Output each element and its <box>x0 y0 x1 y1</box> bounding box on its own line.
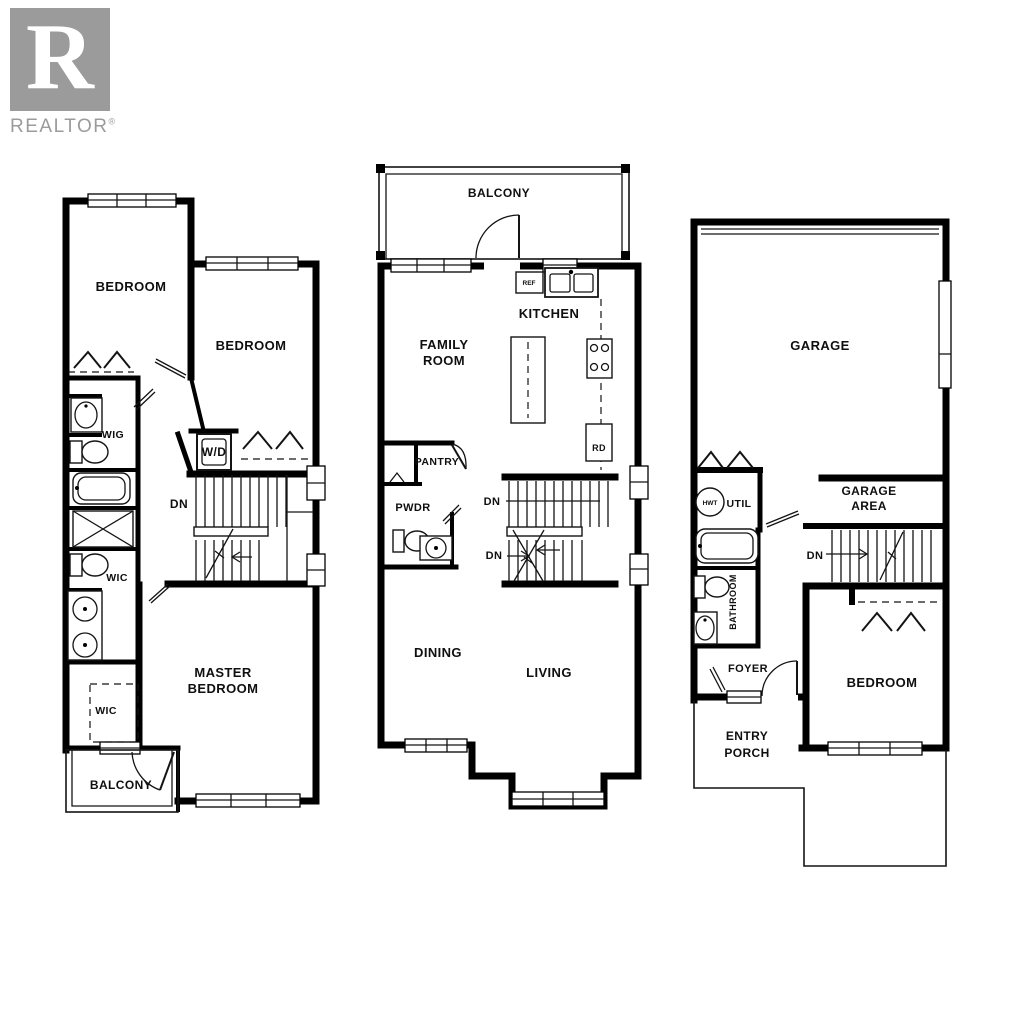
corner-sink-icon <box>420 536 452 560</box>
closet-doors <box>858 602 940 631</box>
label-balcony: BALCONY <box>90 778 152 792</box>
closet-doors <box>698 452 753 468</box>
island-icon <box>511 337 545 423</box>
window <box>307 466 325 500</box>
label-wic-low: WIC <box>95 705 117 717</box>
label-fridge: REF <box>523 280 536 287</box>
bathtub-icon <box>73 473 130 504</box>
window <box>630 466 648 499</box>
room-label-bedroom-b: BEDROOM <box>216 338 287 353</box>
door-leaves <box>134 359 186 603</box>
label-util: UTIL <box>727 498 752 510</box>
toilet-icon <box>70 554 108 576</box>
balcony-outline <box>376 164 630 260</box>
sink-icon <box>71 398 102 432</box>
label-hwt: HWT <box>703 500 718 507</box>
sink-icon <box>694 612 717 644</box>
plan-main-floor: BALCONY REF KITCHEN FAMILY ROOM RD PANTR… <box>376 164 648 806</box>
window <box>196 794 300 807</box>
bay-window <box>512 792 604 806</box>
label-balcony: BALCONY <box>468 186 530 200</box>
room-label-family-2: ROOM <box>423 353 465 368</box>
room-label-garage-area-2: AREA <box>851 499 887 513</box>
window <box>828 742 922 755</box>
room-label-bathroom: BATHROOM <box>728 574 738 630</box>
staircase <box>826 530 931 582</box>
label-powder: PWDR <box>395 502 430 514</box>
porch-outline <box>694 700 946 866</box>
closet-door-leaf <box>710 667 725 692</box>
label-dn-lower: DN <box>486 550 503 562</box>
window <box>206 257 298 270</box>
window <box>88 194 176 207</box>
staircase <box>194 475 313 581</box>
window <box>100 742 140 754</box>
label-dn: DN <box>807 550 824 562</box>
plan-ground-floor: GARAGE HWT UTIL GARAGE AREA DN BATHROOM … <box>694 222 951 866</box>
room-label-master-2: BEDROOM <box>188 681 259 696</box>
window <box>727 691 761 703</box>
floor-plan-page: R REALTOR® <box>0 0 1024 1024</box>
staircase <box>506 481 608 581</box>
garage-door-line <box>701 229 939 234</box>
label-pantry: PANTRY <box>415 456 459 468</box>
double-vanity-icon <box>68 591 102 660</box>
window <box>939 281 951 388</box>
label-wic-mid: WIC <box>106 572 128 584</box>
plan-upper-floor: BEDROOM BEDROOM WIG W/D DN WIC MASTER BE… <box>66 194 325 812</box>
room-label-foyer: FOYER <box>728 663 768 675</box>
room-label-entry-1: ENTRY <box>726 729 768 743</box>
room-label-living: LIVING <box>526 665 572 680</box>
kitchen-sink-icon <box>545 268 598 297</box>
toilet-icon <box>694 576 729 598</box>
cooktop-icon <box>587 339 612 378</box>
window <box>307 554 325 586</box>
label-dn-upper: DN <box>484 496 501 508</box>
label-washer-dryer: W/D <box>202 445 227 459</box>
room-label-dining: DINING <box>414 645 462 660</box>
window <box>405 739 467 752</box>
label-range: RD <box>592 443 606 453</box>
room-label-bedroom-a: BEDROOM <box>96 279 167 294</box>
room-label-entry-2: PORCH <box>724 746 769 760</box>
room-label-kitchen: KITCHEN <box>519 306 580 321</box>
room-label-garage: GARAGE <box>790 338 849 353</box>
window <box>391 259 471 272</box>
room-label-family-1: FAMILY <box>420 337 469 352</box>
floor-plan-drawing: BEDROOM BEDROOM WIG W/D DN WIC MASTER BE… <box>0 0 1024 1024</box>
shower-icon <box>73 511 133 547</box>
room-label-bedroom: BEDROOM <box>847 675 918 690</box>
label-stairs-dn: DN <box>170 497 188 511</box>
bathtub-icon <box>696 529 758 563</box>
door-leaf <box>766 511 799 527</box>
room-label-garage-area-1: GARAGE <box>841 484 896 498</box>
label-wic-top: WIG <box>102 429 124 441</box>
toilet-icon <box>70 441 108 463</box>
room-label-master-1: MASTER <box>194 665 251 680</box>
window <box>630 554 648 585</box>
